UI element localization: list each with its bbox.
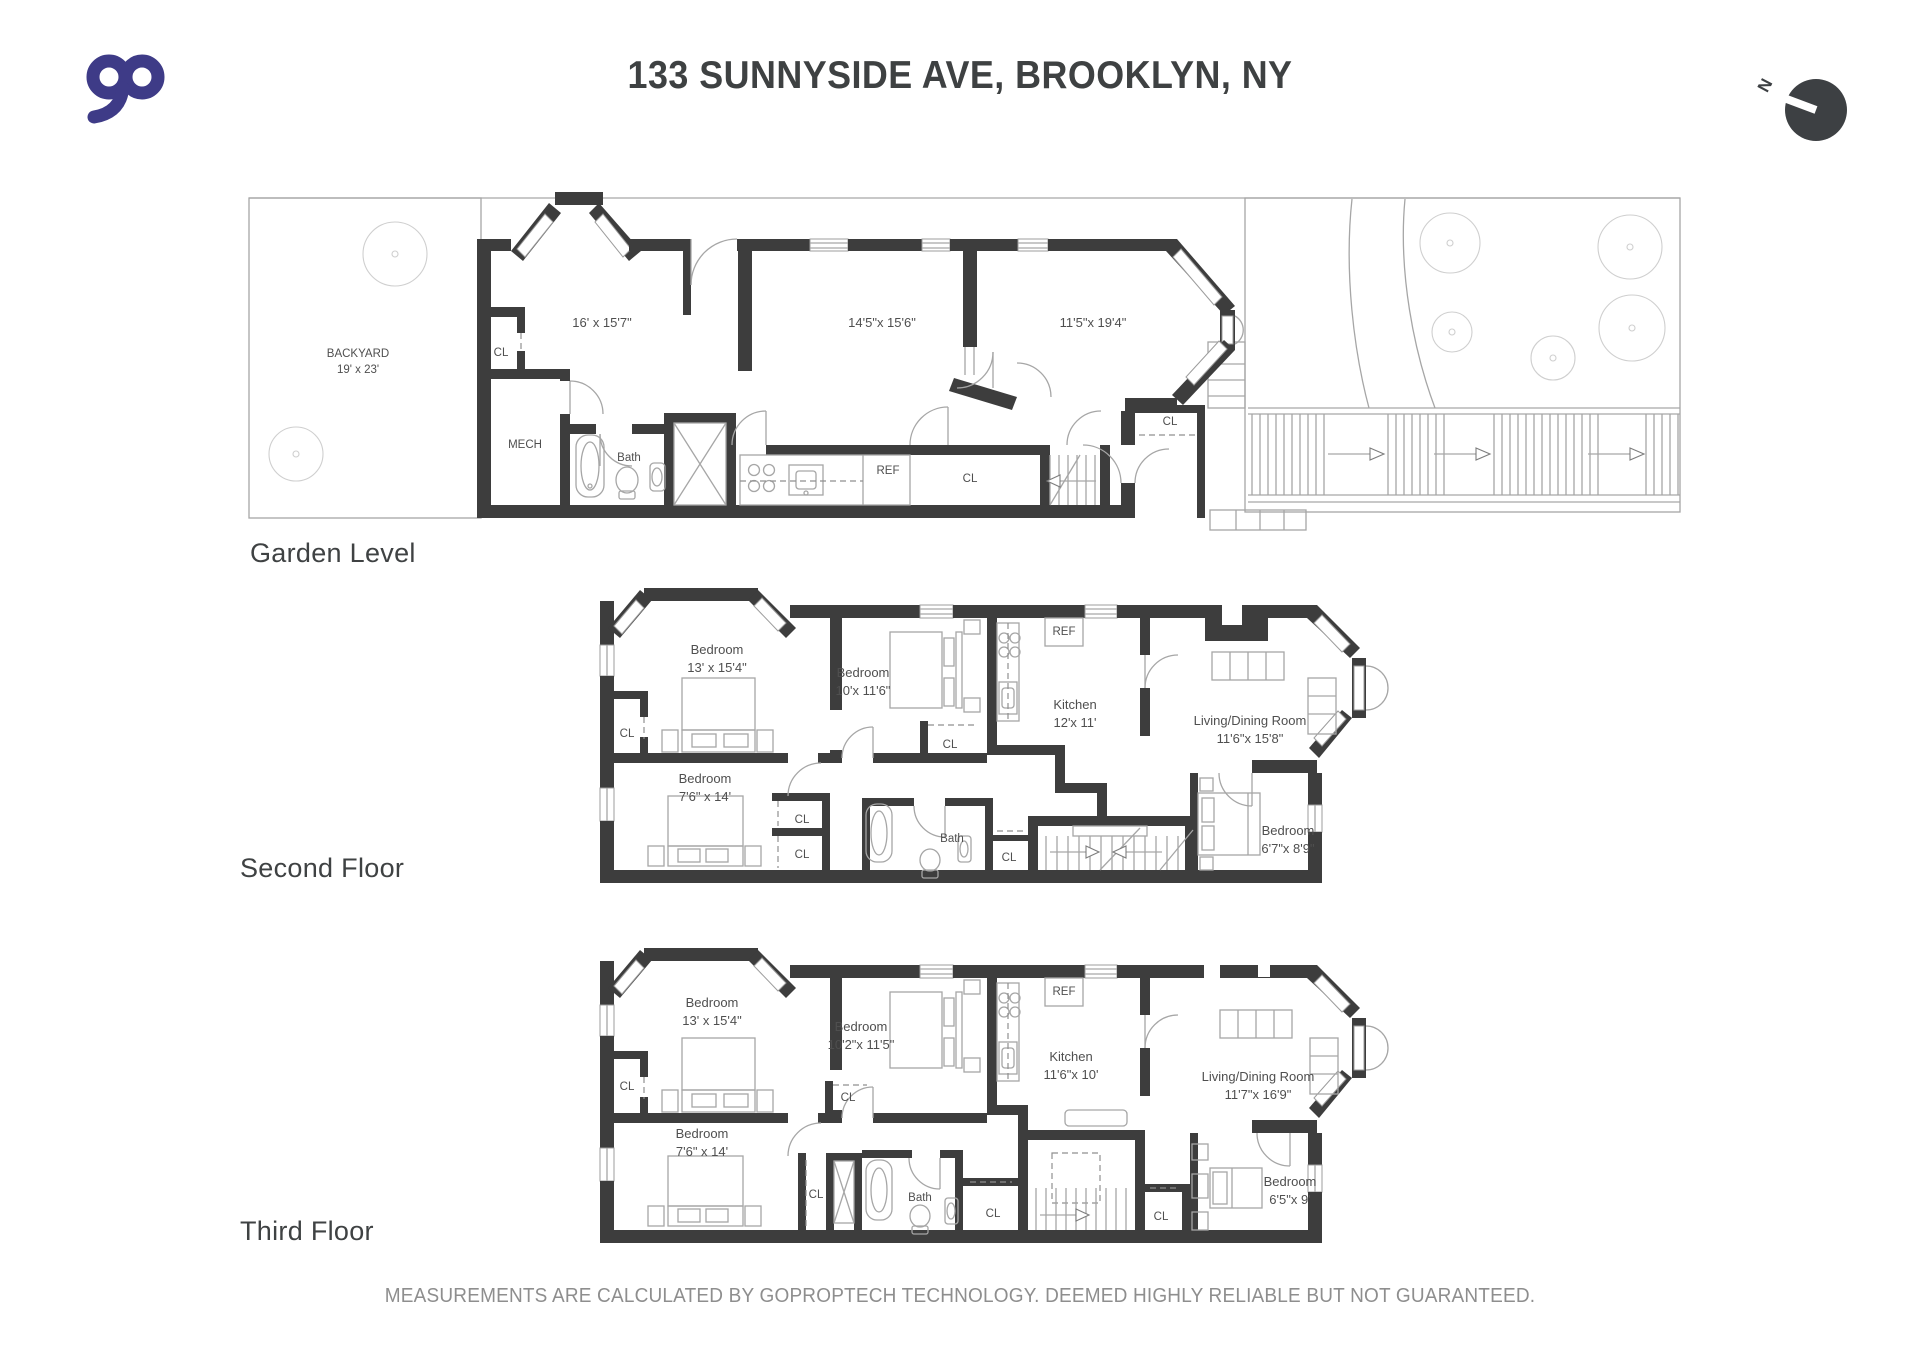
closet-label: CL (620, 728, 635, 740)
room-label-bath: Bath (940, 833, 964, 845)
room-dims-bedroom1: 13' x 15'4" (687, 660, 747, 675)
floor-name-garden: Garden Level (250, 538, 416, 569)
room-label-bedroom2: Bedroom (837, 665, 890, 680)
floorplan-page: 133 SUNNYSIDE AVE, BROOKLYN, NY N (0, 0, 1920, 1357)
room-dims-kitchen: 11'6"x 10' (1044, 1067, 1099, 1082)
room-label-bedroom3: Bedroom (676, 1126, 729, 1141)
floor-name-second: Second Floor (240, 853, 404, 884)
closet-label: CL (841, 1092, 856, 1104)
room-dims-bedroom2: 10'x 11'6" (836, 683, 891, 698)
room-dims-bedroom4: 6'7"x 8'9" (1261, 841, 1315, 856)
room-label-living: Living/Dining Room (1194, 713, 1307, 728)
disclaimer-text: MEASUREMENTS ARE CALCULATED BY GOPROPTEC… (48, 1285, 1872, 1308)
garden-walls (477, 192, 1243, 518)
room-dims-kitchen: 12'x 11' (1053, 715, 1096, 730)
garden-level-plan: BACKYARD 19' x 23' CL 16' x 15'7" 14'5"x… (248, 192, 1710, 537)
closet-label: CL (494, 347, 509, 359)
fridge-label: REF (1053, 986, 1076, 998)
room-dims-bedroom2: 10'2"x 11'5" (828, 1037, 895, 1052)
closet-label: CL (1163, 416, 1178, 428)
room-dims-bedroom3: 7'6" x 14' (679, 789, 731, 804)
third-floor-plan: Bedroom 13' x 15'4" Bedroom 10'2"x 11'5"… (600, 948, 1390, 1248)
room-dims-bedroom4: 6'5"x 9' (1269, 1192, 1310, 1207)
room-dims-living: 11'7"x 16'9" (1225, 1087, 1292, 1102)
room-label-bedroom4: Bedroom (1262, 823, 1315, 838)
room-dims-bedroom3: 7'6" x 14' (676, 1144, 728, 1159)
room-dims-living: 11'6"x 15'8" (1217, 731, 1284, 746)
compass-graphic: N (1756, 58, 1876, 158)
closet-label: CL (795, 849, 810, 861)
fridge-label: REF (877, 465, 900, 477)
room-label-bedroom1: Bedroom (686, 995, 739, 1010)
room-label-mech: MECH (508, 439, 542, 451)
second-floor-plan: Bedroom 13' x 15'4" Bedroom 10'x 11'6" C… (600, 588, 1390, 888)
room-dims-bedroom1: 13' x 15'4" (682, 1013, 742, 1028)
closet-label: CL (986, 1208, 1001, 1220)
compass-icon: N (1756, 58, 1876, 158)
closet-label: CL (795, 814, 810, 826)
closet-label: CL (1002, 852, 1017, 864)
room-label-kitchen: Kitchen (1053, 697, 1096, 712)
closet-label: CL (1154, 1211, 1169, 1223)
room-label-living: Living/Dining Room (1202, 1069, 1315, 1084)
room-label-bath: Bath (617, 452, 641, 464)
compass-north-label: N (1756, 76, 1776, 96)
closet-label: CL (809, 1189, 824, 1201)
room-label-bedroom3: Bedroom (679, 771, 732, 786)
room-dims-backyard: 19' x 23' (337, 364, 379, 376)
closet-label: CL (620, 1081, 635, 1093)
room-label-kitchen: Kitchen (1049, 1049, 1092, 1064)
room-label-bath: Bath (908, 1192, 932, 1204)
closet-label: CL (943, 739, 958, 751)
room-label-backyard: BACKYARD (327, 348, 389, 360)
page-title: 133 SUNNYSIDE AVE, BROOKLYN, NY (77, 54, 1843, 98)
floor-name-third: Third Floor (240, 1216, 374, 1247)
room-label-bedroom1: Bedroom (691, 642, 744, 657)
room-label-bedroom4: Bedroom (1264, 1174, 1317, 1189)
room-dims-1: 16' x 15'7" (572, 315, 632, 330)
fridge-label: REF (1053, 626, 1076, 638)
room-dims-3: 11'5"x 19'4" (1060, 315, 1127, 330)
room-dims-2: 14'5"x 15'6" (848, 315, 916, 330)
room-label-bedroom2: Bedroom (835, 1019, 888, 1034)
closet-label: CL (963, 473, 978, 485)
